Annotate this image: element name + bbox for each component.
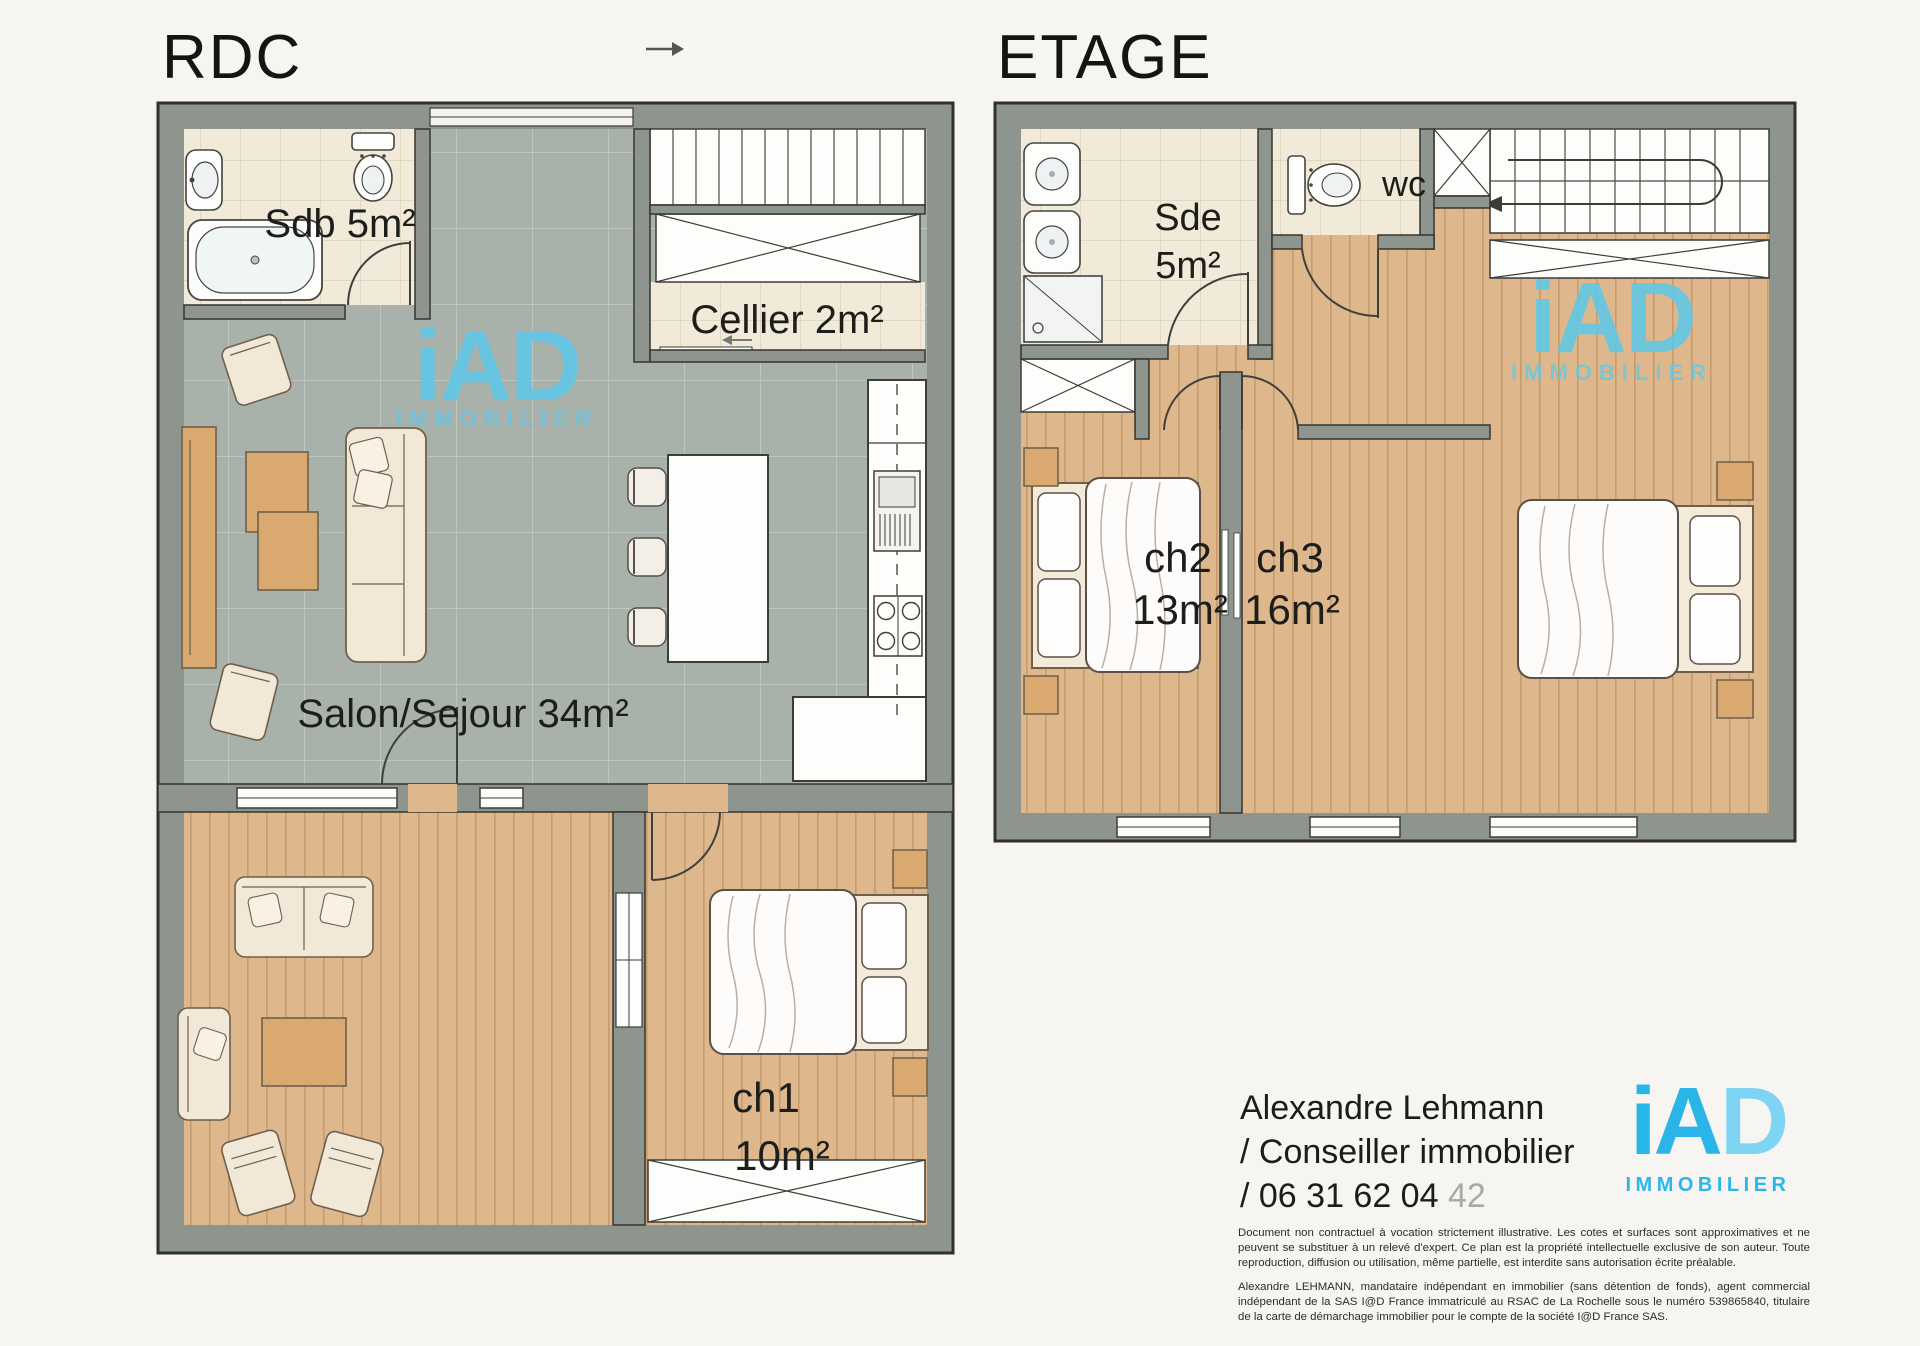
shower — [1024, 276, 1102, 342]
floor-title-rdc: RDC — [162, 22, 302, 93]
pillow — [1690, 516, 1740, 586]
label-ch3-area: 16m² — [1244, 586, 1340, 633]
agent-name: Alexandre Lehmann — [1240, 1086, 1660, 1130]
chair — [628, 608, 666, 646]
pillow — [1690, 594, 1740, 664]
bed — [710, 890, 928, 1054]
pillow — [1038, 493, 1080, 571]
nightstand — [893, 1058, 927, 1096]
iad-logo-subtitle: IMMOBILIER — [1618, 1174, 1798, 1197]
label-ch2-name: ch2 — [1144, 534, 1212, 581]
watermark-subtitle: IMMOBILIER — [396, 406, 598, 431]
chair — [628, 538, 666, 576]
washbasin — [1024, 211, 1080, 273]
dining-table — [668, 455, 768, 662]
nightstand — [1024, 676, 1058, 714]
window — [616, 893, 642, 1027]
window — [1490, 817, 1637, 837]
terrace-door-opening — [408, 784, 457, 812]
label-salon: Salon/Sejour 34m² — [297, 692, 628, 736]
nightstand — [1024, 448, 1058, 486]
legal-disclaimer: Document non contractuel à vocation stri… — [1238, 1226, 1810, 1335]
label-wc: wc — [1381, 163, 1426, 204]
floor-title-etage: ETAGE — [997, 22, 1213, 93]
watermark-iad: iAD IMMOBILIER — [396, 310, 598, 431]
floor-plan-document: iAD IMMOBILIER Sdb 5m² Cellier 2m² Salon… — [0, 0, 1920, 1346]
label-cellier: Cellier 2m² — [690, 298, 883, 342]
ch1-door-opening — [648, 784, 728, 812]
sofa — [178, 1008, 230, 1120]
label-sde-name: Sde — [1154, 197, 1222, 239]
window — [237, 788, 397, 808]
agent-phone: / 06 31 62 04 42 — [1240, 1174, 1660, 1218]
sofa — [235, 877, 373, 957]
legal-paragraph-2: Alexandre LEHMANN, mandataire indépendan… — [1238, 1280, 1810, 1324]
label-sde-area: 5m² — [1155, 245, 1220, 287]
washbasin — [186, 150, 222, 210]
agent-phone-suffix: 42 — [1448, 1177, 1486, 1215]
label-ch2-area: 13m² — [1132, 586, 1228, 633]
coffee-table — [262, 1018, 346, 1086]
legal-paragraph-1: Document non contractuel à vocation stri… — [1238, 1226, 1810, 1270]
wardrobe — [1434, 129, 1490, 196]
wardrobe — [1021, 359, 1135, 412]
nightstand — [1717, 680, 1753, 718]
washbasin — [1024, 143, 1080, 205]
label-ch1-name: ch1 — [732, 1074, 800, 1121]
watermark-subtitle: IMMOBILIER — [1511, 360, 1713, 385]
staircase — [1484, 129, 1769, 233]
agent-role: / Conseiller immobilier — [1240, 1130, 1660, 1174]
pillow — [862, 903, 906, 969]
nightstand — [893, 850, 927, 888]
watermark-brand: iAD — [1529, 262, 1695, 374]
door-leaf — [1234, 533, 1240, 618]
iad-logo-brand: iAD — [1618, 1072, 1798, 1172]
iad-logo: iAD IMMOBILIER — [1618, 1072, 1798, 1197]
pillow — [1038, 579, 1080, 657]
pillow — [862, 977, 906, 1043]
label-ch3-name: ch3 — [1256, 534, 1324, 581]
stove — [874, 596, 922, 656]
sofa — [346, 428, 426, 662]
label-sdb: Sdb 5m² — [264, 202, 415, 246]
window — [480, 788, 523, 808]
tv-cabinet — [182, 427, 216, 668]
toilet — [352, 133, 394, 201]
watermark-iad: iAD IMMOBILIER — [1511, 262, 1713, 385]
plan-rdc: iAD IMMOBILIER Sdb 5m² Cellier 2m² Salon… — [158, 42, 953, 1253]
agent-contact-block: Alexandre Lehmann / Conseiller immobilie… — [1240, 1086, 1660, 1218]
bed — [1518, 500, 1753, 678]
stairs-direction-arrow-icon — [646, 42, 684, 56]
chair — [628, 468, 666, 506]
kitchen-sink — [874, 471, 920, 551]
label-ch1-area: 10m² — [734, 1132, 830, 1179]
window — [1117, 817, 1210, 837]
plan-etage: iAD IMMOBILIER Sde 5m² wc ch2 13m² ch3 1… — [995, 103, 1795, 841]
window — [1310, 817, 1400, 837]
nightstand — [1717, 462, 1753, 500]
staircase — [650, 129, 925, 205]
window — [430, 108, 633, 126]
